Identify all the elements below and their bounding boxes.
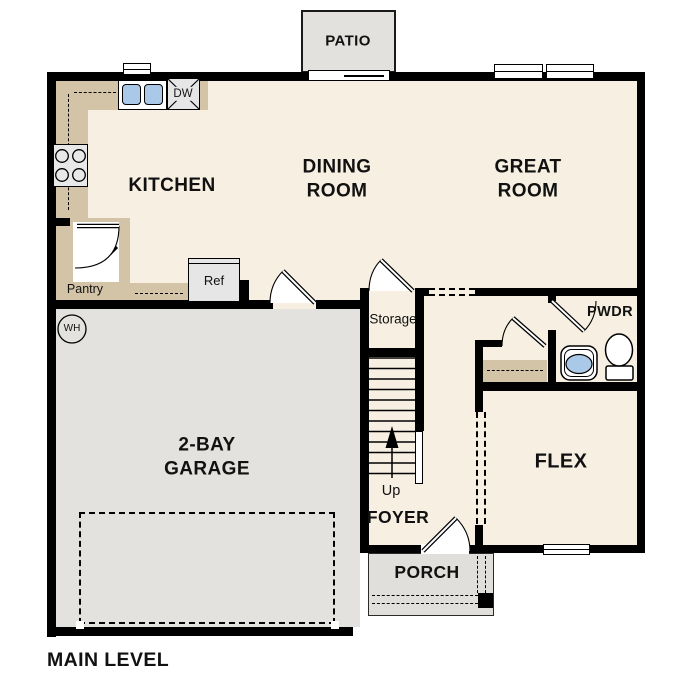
counter-top-run [55, 80, 118, 110]
stair-railing [415, 431, 423, 484]
porch-label: PORCH [394, 562, 459, 584]
floor-plan: PATIO KITCHEN DININGROOM GREATROOM Pantr… [0, 0, 687, 687]
counter-right-sliver [200, 80, 208, 110]
pantry-label: Pantry [67, 282, 103, 298]
wall-right [637, 72, 645, 553]
wall-closet-top [475, 340, 502, 347]
sink-basin [122, 84, 141, 105]
wall-ref-stub [240, 280, 249, 304]
wall-storage-bottom [360, 348, 424, 357]
dishwasher-label: DW [172, 87, 193, 101]
window-flex [543, 544, 590, 555]
porch-dash-v [477, 556, 486, 593]
wall-flex-stub-bottom [475, 525, 483, 545]
storage-label: Storage [369, 312, 416, 329]
wall-stairs-right [415, 288, 424, 431]
powder-label: PWDR [587, 303, 633, 321]
water-heater-label: WH [64, 323, 81, 336]
kitchen-label: KITCHEN [128, 174, 215, 198]
closet-floor [483, 360, 547, 382]
patio-label: PATIO [325, 33, 371, 52]
wall-garage-bottom [47, 627, 353, 636]
wall-hall-top [475, 288, 645, 296]
great-room-label: GREATROOM [494, 155, 561, 203]
garage-label: 2-BAYGARAGE [164, 433, 250, 481]
wall-pantry-cap [53, 218, 70, 226]
opening-flex-foyer [476, 412, 486, 524]
wall-flex-stub-top [475, 391, 483, 412]
wall-foyer-bottom-a [360, 545, 422, 553]
refrigerator-label: Ref [204, 273, 224, 289]
porch-dash-h [372, 595, 478, 604]
counter-left-run [55, 110, 88, 144]
counter-dash [135, 293, 183, 294]
plan-title: MAIN LEVEL [47, 648, 169, 672]
counter-below-stove [55, 187, 88, 218]
closet-rod-dash [487, 370, 543, 371]
window-great-room-2 [546, 64, 594, 79]
wall-pwdr-hinge-stub [548, 296, 556, 303]
window-kitchen [123, 63, 151, 75]
garage-door-notch [331, 621, 339, 629]
opening-hall-arch [429, 288, 475, 296]
patio-slider-door [308, 70, 390, 81]
flex-label: FLEX [535, 450, 588, 475]
window-great-room-1 [494, 64, 543, 79]
sink-basin [144, 84, 163, 105]
sink-unit [118, 80, 167, 110]
foyer-label: FOYER [367, 507, 429, 529]
dining-room-label: DININGROOM [303, 155, 372, 203]
porch-post [478, 593, 493, 608]
wall-pwdr-left [548, 330, 556, 382]
wall-pwdr-closet-bottom [475, 382, 645, 391]
garage-door-outline [79, 512, 335, 624]
up-label: Up [382, 482, 401, 500]
stove [53, 144, 88, 187]
garage-door-notch [76, 621, 84, 629]
counter-dash [74, 92, 116, 93]
